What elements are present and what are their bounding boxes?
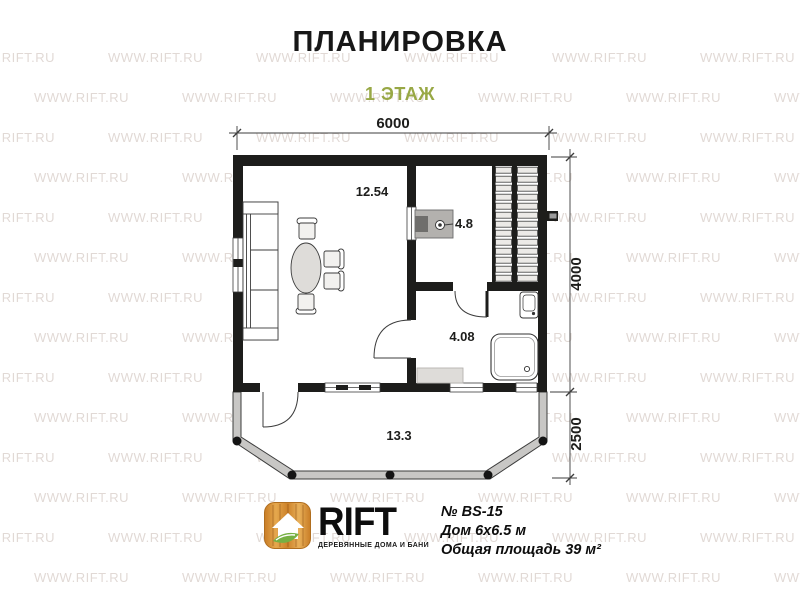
window-bottom-3 xyxy=(516,383,537,392)
window-bottom-1 xyxy=(325,383,380,392)
floor-subtitle: 1 ЭТАЖ xyxy=(0,84,800,105)
dim-right-height-label: 4000 xyxy=(568,257,585,290)
chair-bottom xyxy=(296,294,316,314)
rift-logo-icon xyxy=(264,502,311,549)
veranda-post xyxy=(386,471,395,480)
project-house-size: Дом 6х6.5 м xyxy=(441,522,601,541)
room-living-area-label: 12.54 xyxy=(356,184,389,199)
hall-bench xyxy=(417,368,463,383)
project-number: № BS-15 xyxy=(441,503,601,522)
chair-top xyxy=(297,218,317,239)
room-veranda-area-label: 13.3 xyxy=(386,428,411,443)
chair-right-2 xyxy=(324,271,344,291)
dim-veranda-height-label: 2500 xyxy=(568,417,585,450)
brand-name: RIFT xyxy=(318,503,420,541)
dining-table xyxy=(291,243,321,293)
stairs xyxy=(492,166,538,282)
bathroom-sink xyxy=(520,292,538,318)
veranda-post xyxy=(484,471,493,480)
kitchen-counter xyxy=(415,210,453,238)
page-title: ПЛАНИРОВКА xyxy=(0,26,800,59)
page: { "header": { "title": "ПЛАНИРОВКА", "su… xyxy=(0,0,800,591)
window-bottom-2 xyxy=(450,383,483,392)
chair-right-1 xyxy=(324,249,344,269)
sofa xyxy=(243,202,278,340)
veranda-post xyxy=(539,437,548,446)
project-total-area: Общая площадь 39 м² xyxy=(441,541,601,560)
dim-top-width-label: 6000 xyxy=(376,115,409,132)
room-bathroom-area-label: 4.08 xyxy=(449,329,474,344)
footer: RIFT ДЕРЕВЯННЫЕ ДОМА И БАНИ № BS-15 Дом … xyxy=(264,502,601,560)
room-kitchen-area-label: 4.8 xyxy=(455,216,473,231)
brand-block: RIFT ДЕРЕВЯННЫЕ ДОМА И БАНИ xyxy=(318,502,429,560)
window-left xyxy=(233,238,243,292)
veranda-post xyxy=(288,471,297,480)
project-info: № BS-15 Дом 6х6.5 м Общая площадь 39 м² xyxy=(441,502,601,560)
veranda-post xyxy=(233,437,242,446)
shower-tray xyxy=(491,334,538,380)
